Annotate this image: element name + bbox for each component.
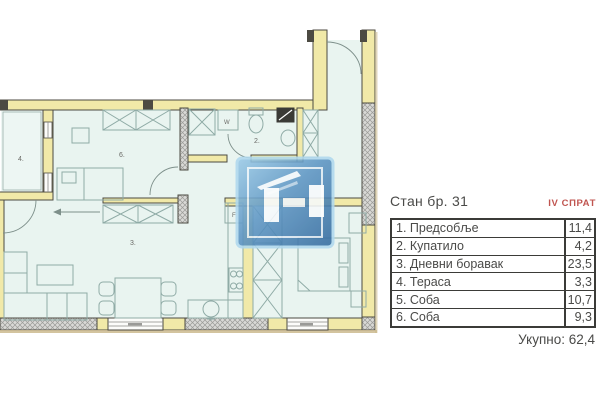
window-living	[108, 318, 163, 330]
panel-header: Стан бр. 31 IV СПРАТ	[390, 193, 596, 215]
table-row: 5. Соба 10,7	[392, 291, 594, 309]
room-name: 2. Купатило	[392, 239, 564, 253]
table-row: 3. Дневни боравак 23,5	[392, 256, 594, 274]
room-area-table: 1. Предсобље 11,4 2. Купатило 4,2 3. Дне…	[390, 218, 596, 328]
watermark-logo	[237, 158, 333, 247]
room-area: 23,5	[564, 256, 594, 273]
room-area: 10,7	[564, 291, 594, 308]
room2-label: 2.	[254, 138, 260, 145]
fridge-label: F	[232, 213, 236, 219]
apartment-title: Стан бр. 31	[390, 193, 468, 209]
table-row: 1. Предсобље 11,4	[392, 220, 594, 238]
room-area: 3,3	[564, 273, 594, 290]
room6-label: 6.	[119, 152, 125, 159]
room-name: 1. Предсобље	[392, 221, 564, 235]
room-name: 4. Тераса	[392, 275, 564, 289]
table-row: 2. Купатило 4,2	[392, 238, 594, 256]
concrete-pillars	[0, 30, 367, 110]
room-area: 4,2	[564, 238, 594, 255]
window-room5	[287, 318, 328, 330]
room-name: 3. Дневни боравак	[392, 257, 564, 271]
room4-label: 4.	[18, 156, 24, 163]
floorplan-page: 4. 6. 2. 3. W F Стан бр. 31 IV СПРАТ 1. …	[0, 0, 600, 400]
room-area: 9,3	[564, 309, 594, 326]
floor-badge: IV СПРАТ	[548, 198, 596, 209]
washing-machine-label: W	[224, 120, 230, 126]
room3-label: 3.	[130, 240, 136, 247]
table-row: 6. Соба 9,3	[392, 309, 594, 326]
room-name: 6. Соба	[392, 310, 564, 324]
room-name: 5. Соба	[392, 293, 564, 307]
table-row: 4. Тераса 3,3	[392, 273, 594, 291]
apartment-info-panel: Стан бр. 31 IV СПРАТ 1. Предсобље 11,4 2…	[390, 193, 596, 347]
total-area: Укупно: 62,4	[390, 332, 596, 347]
room-area: 11,4	[564, 220, 594, 237]
